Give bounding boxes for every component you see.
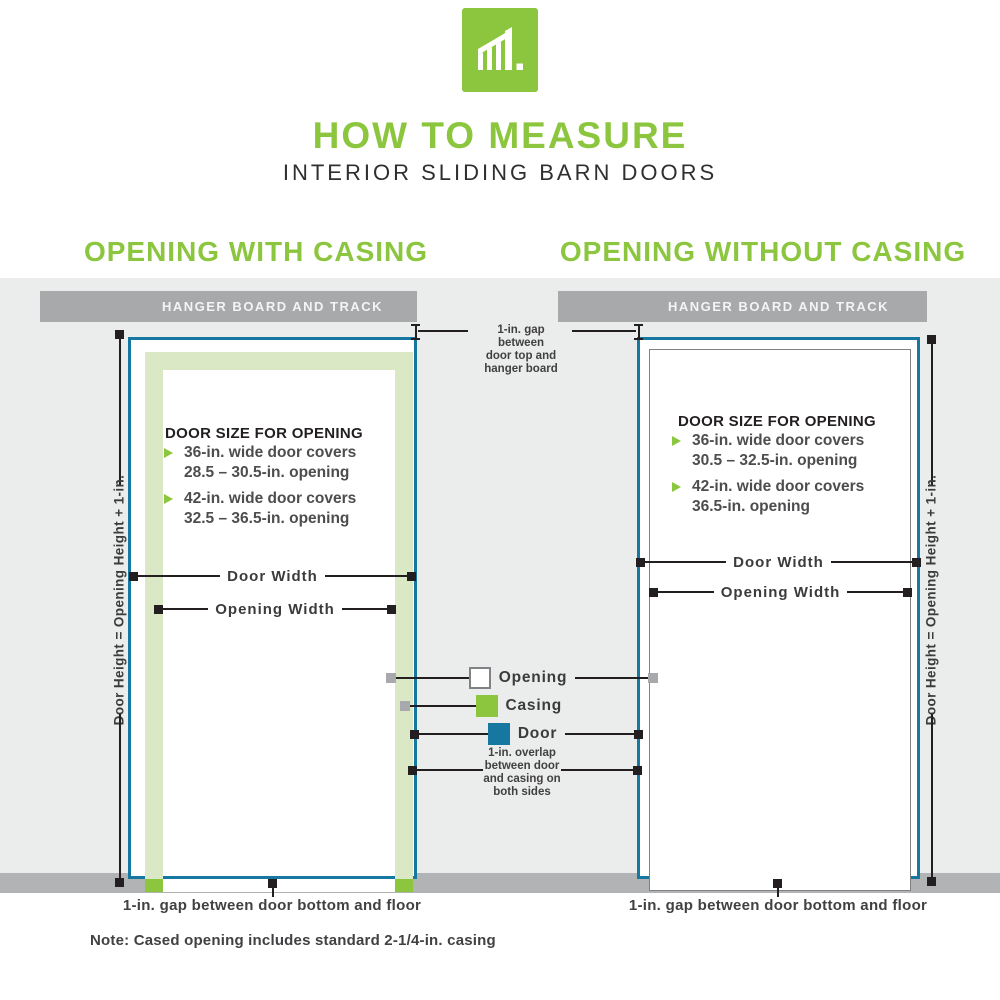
left-door-width-measure: Door Width xyxy=(129,565,416,587)
measure-end-square xyxy=(407,572,416,581)
pointer-line xyxy=(272,888,274,897)
measure-end-square xyxy=(129,572,138,581)
pointer-line xyxy=(777,888,779,897)
right-hanger-board-label: HANGER BOARD AND TRACK xyxy=(637,299,920,314)
measure-end-square xyxy=(410,730,419,739)
right-door-size-heading: DOOR SIZE FOR OPENING xyxy=(678,413,876,430)
left-casing-top-band xyxy=(145,352,413,370)
bullet-triangle-icon xyxy=(672,436,681,446)
left-casing-foot-right xyxy=(395,879,413,892)
right-bottom-gap-label: 1-in. gap between door bottom and floor xyxy=(628,897,928,914)
bullet-text: 36-in. wide door covers xyxy=(672,431,912,451)
right-panel-heading: OPENING WITHOUT CASING xyxy=(545,236,981,268)
gap-cap-icon xyxy=(411,324,420,340)
right-bullet-1: 36-in. wide door covers 30.5 – 32.5-in. … xyxy=(672,431,912,471)
left-door-bottom-gap xyxy=(163,879,395,892)
measure-line xyxy=(119,714,121,879)
measure-end-square xyxy=(927,877,936,886)
right-opening-width-measure: Opening Width xyxy=(649,581,912,603)
left-door-height-label: Door Height = Opening Height + 1-in. xyxy=(112,475,127,726)
left-hanger-board-label: HANGER BOARD AND TRACK xyxy=(128,299,417,314)
measure-end-square xyxy=(408,766,417,775)
legend-door-label: Door xyxy=(510,725,565,743)
left-casing-foot-left xyxy=(145,879,163,892)
measure-end-square xyxy=(387,605,396,614)
bullet-text: 42-in. wide door covers xyxy=(672,477,912,497)
page-subtitle: INTERIOR SLIDING BARN DOORS xyxy=(0,160,1000,186)
measure-end-square xyxy=(903,588,912,597)
left-casing-right-band xyxy=(395,352,413,879)
right-door-width-measure: Door Width xyxy=(636,551,921,573)
door-width-label: Door Width xyxy=(220,568,325,585)
left-opening-width-measure: Opening Width xyxy=(154,598,396,620)
bullet-triangle-icon xyxy=(164,448,173,458)
door-swatch xyxy=(488,723,510,745)
measure-line xyxy=(119,339,121,485)
bullet-text: 30.5 – 32.5-in. opening xyxy=(672,451,912,471)
measure-end-square xyxy=(927,335,936,344)
left-panel-heading: OPENING WITH CASING xyxy=(40,236,472,268)
left-bottom-gap-label: 1-in. gap between door bottom and floor xyxy=(122,897,422,914)
opening-width-label: Opening Width xyxy=(208,601,342,618)
measure-end-square-gray xyxy=(400,701,410,711)
bullet-triangle-icon xyxy=(164,494,173,504)
measure-end-square xyxy=(268,879,277,888)
measure-end-square xyxy=(115,878,124,887)
right-bullet-2: 42-in. wide door covers 36.5-in. opening xyxy=(672,477,912,517)
legend-casing-label: Casing xyxy=(498,697,570,715)
measure-end-square xyxy=(912,558,921,567)
brand-logo-icon xyxy=(462,8,538,92)
measure-end-square xyxy=(634,730,643,739)
measure-line xyxy=(931,714,933,878)
legend-row-door: Door xyxy=(410,723,643,745)
gap-cap-icon xyxy=(634,324,643,340)
left-door-size-heading: DOOR SIZE FOR OPENING xyxy=(165,425,363,442)
measure-end-square-gray xyxy=(648,673,658,683)
right-door-height-label: Door Height = Opening Height + 1-in. xyxy=(924,475,939,726)
annotation-line xyxy=(572,330,636,332)
measure-end-square xyxy=(636,558,645,567)
top-gap-annotation: 1-in. gap between door top and hanger bo… xyxy=(461,324,581,376)
bullet-text: 28.5 – 30.5-in. opening xyxy=(164,463,404,483)
casing-swatch xyxy=(476,695,498,717)
measure-end-square xyxy=(154,605,163,614)
bullet-text: 36-in. wide door covers xyxy=(164,443,404,463)
page-title: HOW TO MEASURE xyxy=(0,115,1000,157)
measure-end-square xyxy=(649,588,658,597)
how-to-measure-infographic: HOW TO MEASURE INTERIOR SLIDING BARN DOO… xyxy=(0,0,1000,1000)
opening-width-label: Opening Width xyxy=(714,584,848,601)
door-width-label: Door Width xyxy=(726,554,831,571)
left-bullet-1: 36-in. wide door covers 28.5 – 30.5-in. … xyxy=(164,443,404,483)
measure-end-square xyxy=(115,330,124,339)
bullet-text: 42-in. wide door covers xyxy=(164,489,404,509)
legend-row-opening: Opening xyxy=(386,667,658,689)
measure-end-square xyxy=(773,879,782,888)
overlap-annotation: 1-in. overlap between door and casing on… xyxy=(462,747,582,799)
legend-row-casing: Casing xyxy=(400,695,570,717)
measure-end-square-gray xyxy=(386,673,396,683)
left-bullet-2: 42-in. wide door covers 32.5 – 36.5-in. … xyxy=(164,489,404,529)
opening-swatch xyxy=(469,667,491,689)
footnote: Note: Cased opening includes standard 2-… xyxy=(90,932,496,949)
bullet-triangle-icon xyxy=(672,482,681,492)
bullet-text: 36.5-in. opening xyxy=(672,497,912,517)
measure-line xyxy=(931,344,933,485)
bullet-text: 32.5 – 36.5-in. opening xyxy=(164,509,404,529)
legend-opening-label: Opening xyxy=(491,669,575,687)
